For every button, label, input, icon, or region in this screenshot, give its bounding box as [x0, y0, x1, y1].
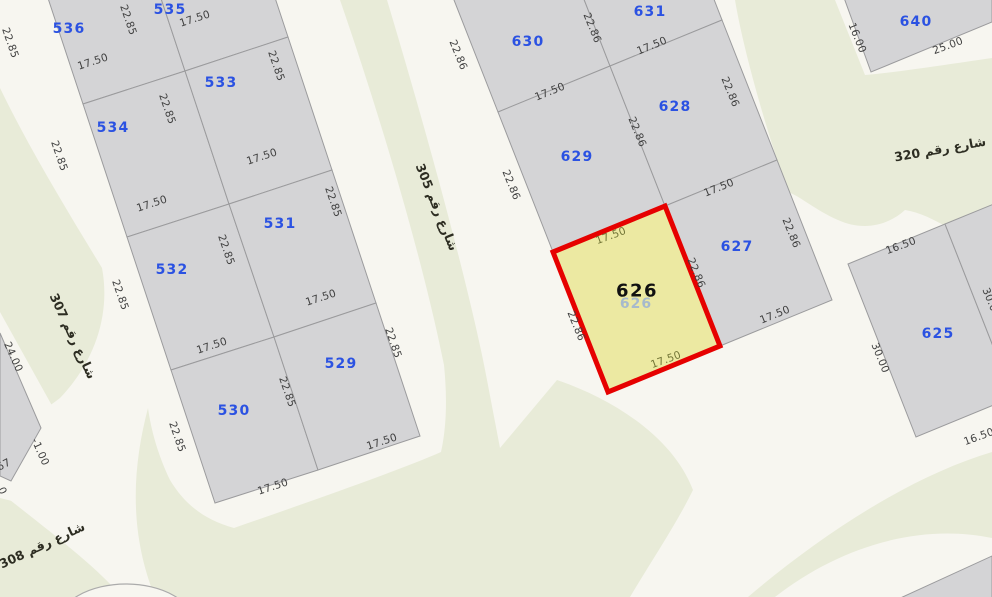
parcel-label-629[interactable]: 629 — [561, 149, 594, 165]
parcel-label-630[interactable]: 630 — [512, 34, 545, 50]
parcel-label-535[interactable]: 535 — [154, 2, 187, 18]
parcel-label-531[interactable]: 531 — [264, 216, 297, 232]
parcel-label-640[interactable]: 640 — [900, 14, 933, 30]
parcel-label-529[interactable]: 529 — [325, 356, 358, 372]
parcel-626-label[interactable]: 626 — [616, 281, 658, 302]
parcel-map-viewport: 22.8522.8517.5017.5022.8522.8522.8517.50… — [0, 0, 992, 597]
cadastral-map: 22.8522.8517.5017.5022.8522.8522.8517.50… — [0, 0, 992, 597]
parcel-label-627[interactable]: 627 — [721, 239, 754, 255]
parcel-label-533[interactable]: 533 — [205, 75, 238, 91]
parcel-label-631[interactable]: 631 — [634, 4, 667, 20]
parcel-label-534[interactable]: 534 — [97, 120, 130, 136]
parcel-label-532[interactable]: 532 — [156, 262, 189, 278]
parcel-label-536[interactable]: 536 — [53, 21, 86, 37]
parcel-label-628[interactable]: 628 — [659, 99, 692, 115]
parcel-label-625[interactable]: 625 — [922, 326, 955, 342]
parcel-label-530[interactable]: 530 — [218, 403, 251, 419]
